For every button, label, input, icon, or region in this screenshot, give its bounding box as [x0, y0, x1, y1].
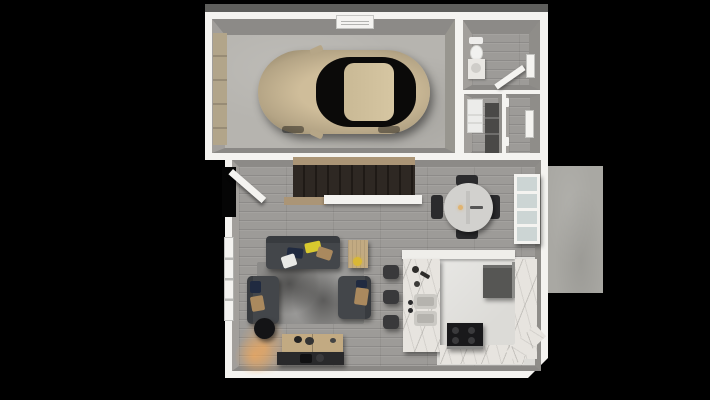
floor-lamp	[254, 318, 275, 339]
stairs-trim	[293, 157, 415, 165]
sliding-glass-door	[514, 174, 540, 244]
console-decor-2	[305, 337, 314, 345]
burner-2	[452, 337, 459, 344]
vanity-sink	[471, 63, 481, 73]
deck	[547, 166, 603, 293]
island-accessory-1	[412, 266, 419, 273]
door-pane	[517, 227, 537, 241]
kitchen-half-wall	[402, 250, 515, 259]
island-accessory-3	[414, 281, 420, 287]
bench-decor-1	[300, 354, 312, 363]
sink-basin	[417, 297, 434, 306]
island-sink-1	[414, 294, 437, 309]
burner-1	[452, 327, 459, 334]
bathroom-vanity	[468, 59, 485, 79]
kitchen-cabinet-dark	[483, 265, 513, 298]
armchair-right-pillow-tan	[354, 287, 369, 306]
coat-hooks-lower	[503, 137, 509, 146]
storage-shelves	[485, 103, 499, 153]
stove-front-trim	[447, 346, 483, 349]
table-tray	[470, 206, 483, 209]
garage-vent	[336, 15, 374, 29]
car-roof	[344, 63, 394, 121]
table-candle	[458, 205, 463, 210]
car-wheel-front	[378, 126, 400, 133]
car	[258, 50, 430, 134]
console-decor-3	[330, 338, 336, 343]
mudroom-floor	[506, 94, 540, 160]
dining-chair-left	[431, 195, 443, 219]
toilet-tank	[469, 37, 483, 44]
coat-hooks-upper	[503, 98, 509, 107]
door-pane	[517, 177, 537, 191]
bar-stool-1	[383, 265, 399, 279]
bench-decor-2	[316, 354, 324, 362]
stove	[447, 323, 483, 349]
floorplan-canvas	[0, 0, 710, 400]
living-windows	[224, 237, 234, 321]
door-pane	[517, 211, 537, 225]
island-faucet-1	[408, 300, 413, 305]
staircase	[293, 165, 415, 198]
stairs-rail-wood	[284, 197, 326, 205]
island-sink-2	[414, 311, 437, 326]
armchair-left-pillow-tan	[250, 295, 265, 312]
bathroom-window	[526, 54, 535, 78]
vent-slats	[341, 19, 369, 25]
washer	[467, 99, 483, 133]
console-decor-1	[294, 336, 302, 343]
garage-door-panel	[213, 33, 227, 145]
stairs-banister	[324, 195, 422, 204]
sink-basin	[417, 314, 434, 323]
mudroom-window	[525, 110, 534, 138]
island-faucet-2	[408, 308, 413, 313]
burner-4	[468, 337, 475, 344]
bar-stool-2	[383, 290, 399, 304]
table-lamp	[353, 257, 362, 266]
burner-3	[468, 327, 475, 334]
bar-stool-3	[383, 315, 399, 329]
car-wheel-rear	[282, 126, 304, 133]
door-pane	[517, 194, 537, 208]
armchair-left-pillow-navy	[250, 281, 261, 293]
